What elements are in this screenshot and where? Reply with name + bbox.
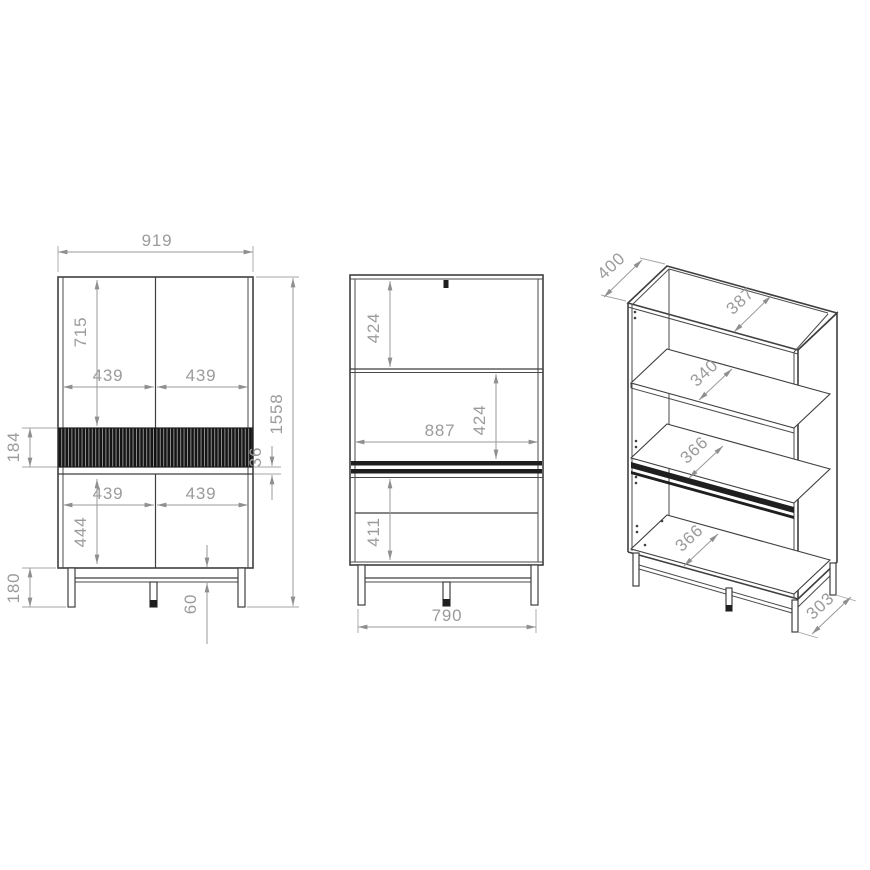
dim-front-rail-clearance: 60 <box>181 594 200 615</box>
technical-drawing-page: 919 715 439 439 184 36 439 439 444 <box>0 0 870 870</box>
dim-section-upper-compartment: 424 <box>364 313 383 344</box>
dim-front-band-height: 184 <box>4 432 23 463</box>
front-middle-leg-foot <box>150 600 157 607</box>
section-hinge-mark <box>444 280 449 288</box>
section-legs <box>358 565 538 606</box>
section-view: 424 887 424 411 790 <box>350 275 543 633</box>
iso-back-right-leg <box>830 563 836 595</box>
dim-front-door-width-br: 439 <box>186 484 217 503</box>
section-middle-leg-foot <box>443 599 450 606</box>
dim-section-middle-compartment: 424 <box>470 405 489 436</box>
dim-front-door-width-tr: 439 <box>186 366 217 385</box>
iso-view: 400 387 340 366 366 303 <box>594 249 856 638</box>
iso-shelf-pin-holes <box>634 311 664 547</box>
dim-front-width: 919 <box>142 231 173 250</box>
dim-front-lower-door-height: 444 <box>71 517 90 548</box>
section-right-leg <box>531 565 538 605</box>
dim-front-upper-door-height: 715 <box>71 317 90 348</box>
front-legs <box>68 568 245 607</box>
front-right-leg <box>238 568 245 607</box>
iso-front-right-leg <box>792 600 798 632</box>
section-band-strip-top <box>351 461 542 466</box>
dim-section-leg-span: 790 <box>432 606 463 625</box>
dim-section-lower-compartment: 411 <box>364 517 383 547</box>
front-view: 919 715 439 439 184 36 439 439 444 <box>4 231 299 644</box>
iso-front-left-leg <box>633 553 639 586</box>
dim-front-leg-height: 180 <box>4 573 23 604</box>
iso-middle-leg-foot <box>726 605 732 611</box>
dim-front-divider: 36 <box>246 447 265 468</box>
dim-front-door-width-tl: 439 <box>93 366 124 385</box>
dim-front-total-height: 1558 <box>267 393 286 434</box>
front-left-leg <box>68 568 75 607</box>
cabinet-dimension-drawing: 919 715 439 439 184 36 439 439 444 <box>0 0 870 870</box>
section-band-strip-bottom <box>351 469 542 474</box>
section-left-leg <box>358 565 365 605</box>
dim-section-inner-width: 887 <box>425 421 456 440</box>
